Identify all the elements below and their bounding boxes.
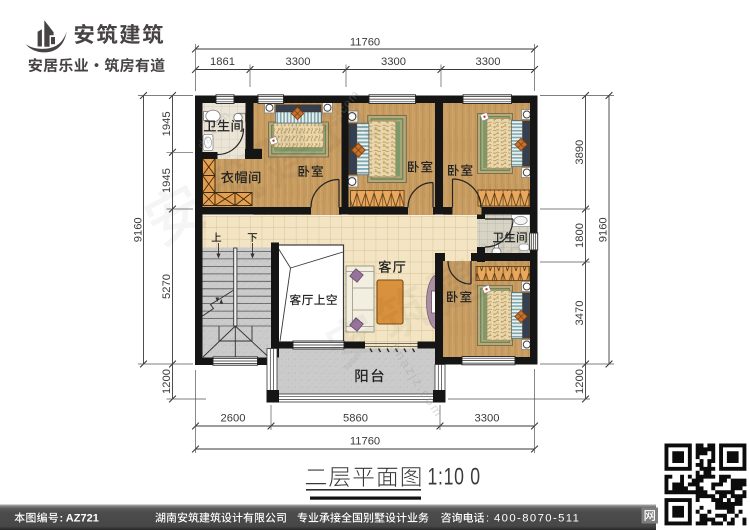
svg-text:9160: 9160	[597, 217, 609, 242]
svg-text:1945: 1945	[161, 111, 173, 136]
svg-text:3300: 3300	[475, 412, 500, 424]
svg-text:5270: 5270	[161, 274, 173, 299]
svg-text:: AZ721: : AZ721	[60, 512, 99, 524]
svg-text:1945: 1945	[161, 168, 173, 193]
svg-text:1861: 1861	[210, 56, 235, 68]
svg-text:3300: 3300	[286, 56, 311, 68]
svg-text:1800: 1800	[574, 223, 586, 248]
svg-text:3470: 3470	[574, 301, 586, 326]
svg-text:1:10 0: 1:10 0	[428, 463, 481, 491]
svg-text:5860: 5860	[343, 412, 368, 424]
svg-text:3300: 3300	[381, 56, 406, 68]
svg-text:1200: 1200	[574, 369, 586, 394]
svg-text:9160: 9160	[132, 217, 144, 242]
svg-text::: :	[486, 512, 489, 524]
svg-text:400-8070-511: 400-8070-511	[494, 512, 580, 524]
svg-text:11760: 11760	[350, 36, 380, 48]
svg-text:11760: 11760	[350, 435, 380, 447]
svg-text:3890: 3890	[574, 140, 586, 165]
svg-text:2600: 2600	[221, 412, 246, 424]
svg-text:1200: 1200	[161, 369, 173, 394]
svg-text:3300: 3300	[476, 56, 501, 68]
